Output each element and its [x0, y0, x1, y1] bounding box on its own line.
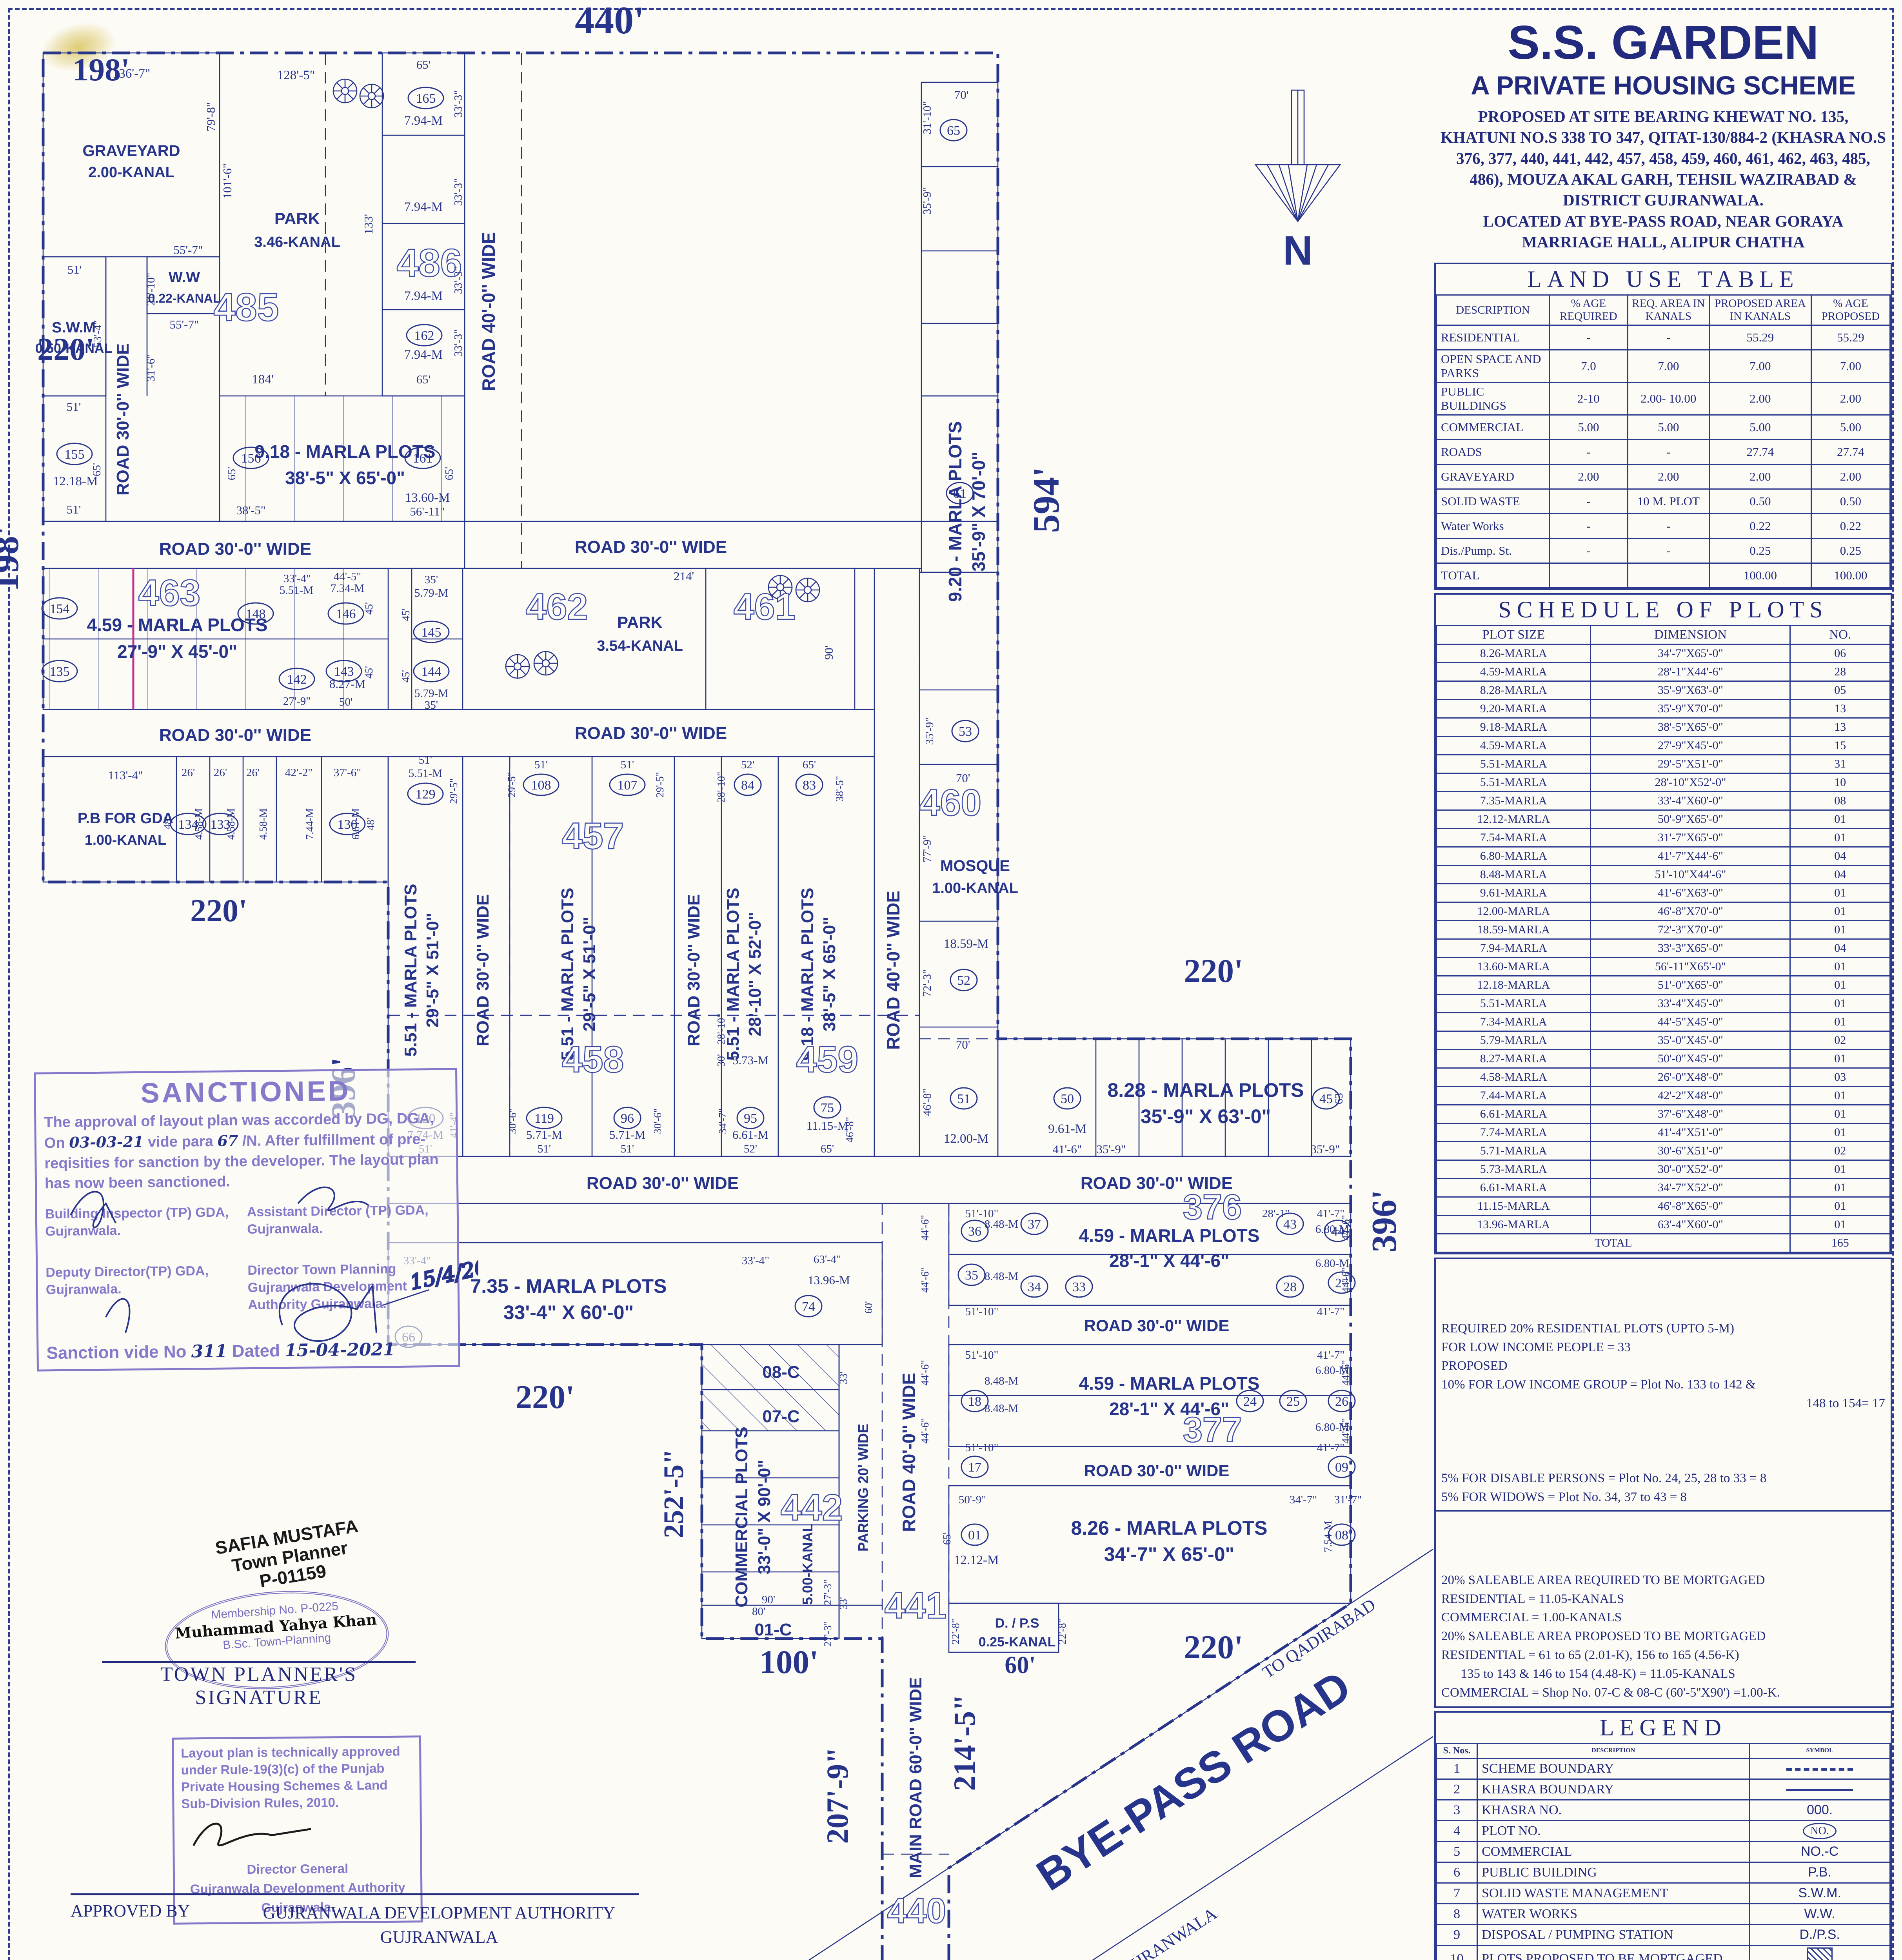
plot-number: 65 [947, 123, 960, 138]
note-line: 5% FOR WIDOWS = Plot No. 34, 37 to 43 = … [1441, 1488, 1885, 1507]
schedule-row: 6.61-MARLA 34'-7"X52'-0" 01 [1437, 1179, 1890, 1197]
legend-symbol: 000. [1807, 1802, 1833, 1817]
scheme-location: LOCATED AT BYE-PASS ROAD, NEAR GORAYA MA… [1440, 211, 1887, 253]
plan-label: 8.28 - MARLA PLOTS [1108, 1079, 1304, 1101]
plan-label: 41'-7" [1317, 1349, 1344, 1361]
plan-label: 4.59 - MARLA PLOTS [87, 615, 268, 635]
plan-label: 56'-11" [410, 505, 445, 518]
schedule-row: 4.59-MARLA 28'-1"X44'-6" 28 [1437, 663, 1890, 681]
plan-label: 459 [796, 1039, 859, 1080]
plan-label: 33' [837, 1372, 849, 1384]
schedule-row: 12.00-MARLA 46'-8"X70'-0" 01 [1437, 902, 1890, 921]
legend-symbol [1807, 1947, 1833, 1960]
stamp-signatures: 15/4/2021 [47, 1168, 478, 1443]
plan-label: 7.94-M [404, 289, 443, 303]
plot-number: 165 [416, 91, 436, 106]
legend-row: 9 DISPOSAL / PUMPING STATION D./P.S. [1437, 1924, 1890, 1945]
plan-label: 65' [443, 467, 456, 480]
plan-label: 55'-7" [173, 243, 203, 257]
plan-label: 51'-10" [965, 1305, 999, 1318]
plot-number: 52 [957, 973, 970, 988]
plan-label: 5.51-M [409, 767, 442, 780]
plan-label: ROAD 30'-0'' WIDE [575, 724, 727, 743]
plan-label: 35'-9" [923, 717, 936, 745]
handwritten-date: 15/4/2021 [408, 1250, 478, 1295]
dg-signature [182, 1811, 347, 1855]
plan-label: 136'-7" [113, 67, 150, 81]
layout-plan-title: LAYOUT PLAN [86, 1954, 608, 1960]
plot-number: 129 [416, 787, 436, 802]
plan-label: 3.54-KANAL [597, 638, 683, 654]
plan-label: 31'-10" [921, 101, 934, 134]
plan-label: 4.59 - MARLA PLOTS [1079, 1225, 1260, 1246]
plan-label: 30'-6" [507, 1108, 518, 1134]
plot-number: 161 [413, 451, 433, 466]
plan-label: 12.00-M [944, 1132, 989, 1146]
plan-label: 50'-9" [959, 1494, 986, 1506]
schedule-row: 12.18-MARLA 51'-0"X65'-0" 01 [1437, 976, 1890, 995]
plan-label: 35'-9" [921, 187, 934, 214]
plot-number: 162 [414, 328, 434, 343]
schedule-row: 7.94-MARLA 33'-3"X65'-0" 04 [1437, 939, 1890, 958]
plan-label: 08-C [762, 1363, 799, 1382]
plan-label: 65' [416, 58, 431, 71]
plan-label: 51' [621, 1143, 634, 1155]
plan-label: 33'-3" [452, 90, 465, 118]
plan-label: 26' [246, 766, 260, 779]
scheme-description: PROPOSED AT SITE BEARING KHEWAT NO. 135,… [1440, 106, 1887, 211]
plan-label: 220' [1184, 953, 1243, 989]
plot-number: 45 [1319, 1092, 1333, 1106]
land-use-header: % AGE PROPOSED [1811, 295, 1890, 325]
plot-number: 133 [211, 817, 231, 832]
plan-label: ROAD 30'-0'' WIDE [113, 343, 133, 495]
legend-row: 10 PLOTS PROPOSED TO BE MORTGAGED [1437, 1945, 1890, 1960]
plan-label: 4.58-M [257, 808, 269, 840]
plan-label: 27'-3" [822, 1579, 834, 1605]
plan-label: 7.94-M [404, 200, 443, 214]
plan-label: 31'-6" [145, 354, 157, 381]
plan-label: 460 [919, 782, 982, 824]
plan-label: 26' [182, 766, 195, 779]
plot-number: 24 [1243, 1394, 1257, 1409]
legend-row: 4 PLOT NO. NO. [1437, 1820, 1890, 1841]
plot-number: 75 [821, 1101, 834, 1115]
plan-label: 9.18 - MARLA PLOTS [798, 888, 817, 1061]
plan-label: 70' [956, 1038, 970, 1051]
schedule-row: 6.80-MARLA 41'-7"X44'-6" 04 [1437, 847, 1890, 866]
plan-label: 44'-6" [919, 1360, 931, 1385]
land-use-table: DESCRIPTION % AGE REQUIRED REQ. AREA IN … [1436, 294, 1891, 588]
plan-label: 1.00-KANAL [85, 832, 166, 848]
plot-number: 34 [1028, 1280, 1041, 1294]
plot-number: 134 [178, 817, 198, 832]
plan-label: ROAD 30'-0'' WIDE [1084, 1316, 1230, 1335]
plan-label: 28'-10" [715, 1014, 727, 1045]
land-use-header: DESCRIPTION [1437, 295, 1550, 325]
approving-authority: GUJRANWALA DEVELOPMENT AUTHORITY GUJRANW… [239, 1901, 639, 1949]
legend-row: 6 PUBLIC BUILDING P.B. [1437, 1862, 1890, 1883]
plan-label: 5.79-M [414, 687, 448, 700]
plan-label: 33'-3" [452, 267, 465, 294]
plot-number: 44 [1331, 1224, 1344, 1239]
plan-label: 198' [0, 526, 26, 592]
plan-label: ROAD 40'-0'' WIDE [899, 1373, 919, 1532]
note-line: 148 to 154= 17 [1441, 1394, 1885, 1413]
note-line: 20% SALEABLE AREA PROPOSED TO BE MORTGAG… [1441, 1627, 1885, 1646]
plan-label: 5.00-KANAL [799, 1523, 816, 1605]
plot-number: 61 [953, 486, 966, 501]
plan-label: 28'-10" X 52'-0" [745, 912, 765, 1036]
plan-label: ROAD 30'-0'' WIDE [575, 537, 727, 557]
plan-label: 458 [562, 1039, 624, 1080]
legend-header: SYMBOL [1749, 1743, 1890, 1758]
plan-label: ROAD 30'-0'' WIDE [587, 1174, 739, 1193]
town-planner-signature-label: TOWN PLANNER'S SIGNATURE [102, 1661, 416, 1709]
plan-label: S.W.M [52, 319, 96, 336]
plan-label: 65' [821, 1143, 834, 1155]
plan-label: 41'-7" [1317, 1441, 1344, 1454]
note-line: 5% FOR DISABLE PERSONS = Plot No. 24, 25… [1441, 1469, 1885, 1488]
plan-label: 35' [425, 699, 438, 711]
plan-label: ROAD 30'-0'' WIDE [1084, 1461, 1230, 1480]
plan-label: 80' [752, 1605, 765, 1618]
plan-label: 44'-6" [1340, 1418, 1352, 1443]
plan-label: GRAVEYARD [83, 142, 180, 160]
plot-number: 53 [959, 724, 972, 739]
plan-label: 0.25-KANAL [979, 1635, 1055, 1650]
plan-label: 38'-5" X 65'-0" [285, 468, 405, 488]
plan-label: W.W [169, 269, 200, 286]
schedule-row: 6.61-MARLA 37'-6"X48'-0" 01 [1437, 1105, 1890, 1123]
schedule-row: 5.71-MARLA 30'-6"X51'-0" 02 [1437, 1142, 1890, 1160]
plan-label: 214'-5" [947, 1694, 981, 1791]
plan-label: 44'-6" [919, 1418, 931, 1443]
plan-label: 5.51 - MARLA PLOTS [558, 888, 577, 1061]
plan-label: 46'-8" [844, 1117, 856, 1142]
plan-label: 7.94-M [404, 348, 443, 362]
plan-label: 22'-8" [950, 1619, 961, 1644]
plan-label: PARK [617, 613, 663, 632]
plan-label: 79'-8" [204, 102, 218, 131]
schedule-row: 9.20-MARLA 35'-9"X70'-0" 13 [1437, 700, 1890, 718]
note-line: FOR LOW INCOME PEOPLE = 33 [1441, 1338, 1885, 1357]
schedule-row: 7.35-MARLA 33'-4"X60'-0" 08 [1437, 792, 1890, 810]
plan-label: 27'-9" [283, 695, 311, 708]
plan-label: 52' [744, 1143, 757, 1155]
schedule-row: 5.73-MARLA 30'-0"X52'-0" 01 [1437, 1160, 1890, 1179]
plan-label: 35'-9" [1096, 1142, 1126, 1156]
approved-by-label: APPROVED BY [71, 1901, 239, 1949]
plan-label: 44'-6" [1340, 1360, 1352, 1385]
plan-label: 44'-6" [919, 1267, 931, 1292]
schedule-row: 5.51-MARLA 33'-4"X45'-0" 01 [1437, 995, 1890, 1013]
plan-label: 34'-7" [1290, 1494, 1317, 1506]
plot-number: 08 [1335, 1528, 1348, 1543]
plan-label: 65' [225, 467, 238, 480]
note-line: 135 to 143 & 146 to 154 (4.48-K) = 11.05… [1441, 1665, 1885, 1684]
plan-label: 29'-5" X 51'-0" [423, 913, 442, 1028]
plot-number: 74 [802, 1299, 815, 1314]
plan-label: 9.20 - MARLA PLOTS [945, 421, 965, 602]
schedule-row: 7.74-MARLA 41'-4"X51'-0" 01 [1437, 1123, 1890, 1142]
schedule-row: 9.18-MARLA 38'-5"X65'-0" 13 [1437, 718, 1890, 737]
legend-symbol: S.W.M. [1798, 1886, 1841, 1900]
plan-label: 5.71-M [526, 1128, 562, 1142]
plan-label: 65' [416, 372, 431, 386]
plan-label: 440' [575, 0, 645, 42]
plan-label: 13.60-M [405, 491, 450, 505]
schedule-title: SCHEDULE OF PLOTS [1436, 596, 1891, 623]
plan-label: 3.46-KANAL [254, 234, 340, 250]
plan-label: 55'-7" [169, 318, 199, 331]
plan-label: 63'-4" [814, 1253, 841, 1266]
plan-label: 220' [190, 893, 247, 928]
plan-label: 220' [515, 1379, 574, 1416]
layout-plan-sheet: N 440'198'220'198'220'396'594'220'396'22… [0, 0, 1902, 1960]
land-use-row: OPEN SPACE AND PARKS 7.0 7.00 7.00 7.00 [1437, 350, 1890, 383]
note-line: 20% SALEABLE AREA REQUIRED TO BE MORTGAG… [1441, 1571, 1885, 1590]
plan-label: 60' [1005, 1652, 1035, 1679]
plan-label: 53'-4" [91, 320, 104, 348]
plan-label: 7.35 - MARLA PLOTS [471, 1275, 667, 1297]
plan-label: 463 [138, 572, 201, 614]
plot-number: 37 [1028, 1217, 1041, 1232]
plot-number: 145 [421, 625, 441, 640]
land-use-row: GRAVEYARD 2.00 2.00 2.00 2.00 [1437, 465, 1890, 489]
plan-label: 29'-5" [506, 772, 518, 797]
plan-label: 184' [252, 372, 273, 387]
plan-label: 51' [534, 759, 548, 771]
plan-label: 13.96-M [808, 1273, 850, 1287]
plan-label: 8.48-M [985, 1270, 1018, 1283]
plan-label: 29'-5" [654, 772, 666, 797]
plan-label: 38'-5" [236, 503, 265, 517]
plot-number: 43 [1283, 1217, 1297, 1232]
plan-label: 45' [363, 602, 375, 615]
plan-label: 28'-1" X 44'-6" [1109, 1250, 1229, 1271]
plan-label: 37'-6" [334, 766, 361, 779]
schedule-row: 5.51-MARLA 29'-5"X51'-0" 31 [1437, 755, 1890, 773]
plan-label: 34'-7" X 65'-0" [1104, 1543, 1234, 1565]
plot-number: 28 [1283, 1280, 1297, 1294]
plan-label: 42'-2" [285, 766, 312, 779]
plan-label: 45' [400, 608, 412, 621]
legend-symbol: NO. [1803, 1823, 1836, 1839]
plan-label: 113'-4" [108, 768, 143, 782]
plan-label: 51' [419, 754, 432, 766]
plan-label: 461 [734, 586, 796, 628]
land-use-section: LAND USE TABLE DESCRIPTION % AGE REQUIRE… [1434, 263, 1892, 590]
plot-number: 148 [246, 607, 266, 621]
plan-label: TO QADIRABAD [1259, 1595, 1379, 1682]
land-use-header: PROPOSED AREA IN KANALS [1709, 295, 1811, 325]
main-title-block: LAYOUT PLAN LAYOUT PLAN SUPER IMPOSED ON… [86, 1954, 608, 1960]
legend-symbol [1786, 1768, 1853, 1771]
notes-section: REQUIRED 20% RESIDENTIAL PLOTS (UPTO 5-M… [1434, 1258, 1892, 1708]
plot-number: 01 [968, 1528, 981, 1543]
plan-label: 52' [741, 759, 754, 771]
plan-label: 12.12-M [954, 1553, 999, 1567]
plan-label: 5.79-M [414, 587, 448, 599]
plan-label: ROAD 40'-0'' WIDE [883, 891, 903, 1050]
plot-number: 155 [65, 447, 85, 462]
land-use-row: TOTAL 100.00 100.00 [1437, 563, 1890, 588]
plan-label: BYE-PASS ROAD [1028, 1661, 1359, 1900]
land-use-header: % AGE REQUIRED [1550, 295, 1628, 325]
plan-label: 9.61-M [1048, 1122, 1086, 1136]
plan-label: 22'-8" [1056, 1619, 1068, 1644]
plot-number: 143 [334, 664, 354, 679]
legend-symbol: W.W. [1804, 1906, 1835, 1921]
schedule-row: 13.96-MARLA 63'-4"X60'-0" 01 [1437, 1216, 1890, 1234]
schedule-row: 5.51-MARLA 28'-10"X52'-0" 10 [1437, 773, 1890, 792]
plot-number: 135 [50, 664, 70, 679]
sanctioned-title: SANCTIONED [44, 1074, 448, 1111]
land-use-row: Dis./Pump. St. - - 0.25 0.25 [1437, 539, 1890, 563]
plot-number: 50 [1061, 1092, 1074, 1106]
plan-label: 7.34-M [331, 582, 364, 595]
plan-label: PARK [274, 209, 320, 228]
plot-number: 130 [338, 817, 358, 832]
plan-label: D. / P.S [995, 1616, 1039, 1631]
note-line: COMMERCIAL = Shop No. 07-C & 08-C (60'-5… [1441, 1684, 1885, 1702]
plan-label: 48' [365, 818, 376, 830]
plot-number: 83 [803, 778, 816, 793]
plan-label: 46'-8" [921, 1089, 934, 1116]
title-panel: S.S. GARDEN A PRIVATE HOUSING SCHEME PRO… [1434, 10, 1892, 1960]
plan-label: 51' [538, 1143, 551, 1155]
plan-label: 18.59-M [944, 937, 989, 951]
legend-symbol: D./P.S. [1800, 1927, 1840, 1942]
plan-label: 34'-7" [717, 1108, 728, 1134]
plan-label: 38'-5" [834, 776, 845, 801]
plan-label: 5.71-M [609, 1128, 645, 1142]
sanction-para-handwritten: 67 [217, 1132, 238, 1150]
plan-label: 7.44-M [304, 808, 316, 840]
plan-label: 8.26 - MARLA PLOTS [1071, 1517, 1268, 1539]
schedule-row: 8.48-MARLA 51'-10"X44'-6" 04 [1437, 866, 1890, 884]
schedule-row: 9.61-MARLA 41'-6"X63'-0" 01 [1437, 884, 1890, 902]
plan-label: 128'-5" [277, 68, 315, 82]
plan-label: PARKING 20' WIDE [855, 1424, 871, 1552]
bye-pass-road-upper-edge [708, 1549, 1433, 1960]
plot-number: 119 [534, 1111, 554, 1126]
plan-label: 60' [863, 1301, 874, 1314]
plan-label: 485 [214, 285, 279, 329]
schedule-row: 7.34-MARLA 44'-5"X45'-0" 01 [1437, 1013, 1890, 1031]
plot-number: 96 [621, 1111, 634, 1126]
plot-number: 95 [744, 1111, 757, 1126]
plan-label: 44'-5" [334, 570, 361, 583]
plan-label: 440 [887, 1891, 946, 1931]
plan-label: 33'-4" [742, 1254, 769, 1267]
plan-label: 31'-7" [1334, 1494, 1362, 1506]
plan-label: 29'-5" X 51'-0" [580, 917, 599, 1032]
legend-header: DESCRIPTION [1477, 1743, 1749, 1758]
schedule-row: 7.54-MARLA 31'-7"X65'-0" 01 [1437, 829, 1890, 847]
land-use-row: SOLID WASTE - 10 M. PLOT 0.50 0.50 [1437, 489, 1890, 514]
plan-label: 35' [425, 573, 438, 586]
plot-number: 108 [531, 778, 551, 793]
plan-label: ROAD 30'-0'' WIDE [159, 726, 311, 745]
plan-label: 35'-9" [1310, 1142, 1340, 1156]
schedule-row: 8.26-MARLA 34'-7"X65'-0" 06 [1437, 644, 1890, 663]
plot-number: 154 [50, 602, 70, 616]
plot-number: 156 [241, 451, 261, 466]
plan-label: 442 [781, 1487, 843, 1528]
plan-label: MOSQUE [940, 857, 1010, 875]
plot-number: 09 [1335, 1460, 1348, 1475]
plan-label: 33'-3" [452, 329, 465, 357]
plan-label: 26' [214, 766, 227, 779]
legend-table: S. Nos. DESCRIPTION SYMBOL 1 SCHEME BOUN… [1436, 1743, 1891, 1960]
plan-label: 377 [1183, 1410, 1242, 1450]
plan-label: 207'-9" [820, 1747, 854, 1844]
legend-title: LEGEND [1436, 1714, 1891, 1741]
schedule-total-row: TOTAL 165 [1437, 1234, 1890, 1252]
plan-label: 27'-3" [822, 1621, 834, 1646]
plan-label: ROAD 30'-0'' WIDE [684, 894, 703, 1046]
plan-label: ROAD 30'-0'' WIDE [473, 894, 492, 1046]
land-use-header: REQ. AREA IN KANALS [1628, 295, 1709, 325]
plot-number: 35 [965, 1268, 978, 1283]
north-label: N [1283, 228, 1313, 274]
plan-label: 35'-9" X 70'-0" [968, 452, 989, 572]
plan-label: 51' [621, 759, 634, 771]
land-use-row: Water Works - - 0.22 0.22 [1437, 514, 1890, 539]
plot-number: 84 [741, 778, 754, 793]
plot-number: 33 [1072, 1280, 1086, 1294]
plan-label: 7.94-M [404, 114, 443, 128]
schedule-row: 8.28-MARLA 35'-9"X63'-0" 05 [1437, 681, 1890, 700]
plan-label: 8.48-M [985, 1218, 1018, 1230]
plan-label: ROAD 40'-0'' WIDE [478, 232, 499, 391]
plan-label: 29'-5" [448, 778, 460, 804]
plot-number: 146 [336, 607, 356, 621]
plan-label: 8.48-M [985, 1402, 1018, 1415]
legend-section: LEGEND S. Nos. DESCRIPTION SYMBOL 1 SCHE… [1434, 1711, 1892, 1960]
plan-label: 220' [1184, 1629, 1243, 1666]
plot-number: 27 [1335, 1276, 1348, 1290]
plan-label: 30' [715, 1054, 727, 1067]
plot-number: 26 [1335, 1394, 1348, 1409]
plot-number: 25 [1286, 1394, 1300, 1409]
note-line: PROPOSED [1441, 1357, 1885, 1376]
plan-label: 90' [822, 646, 836, 660]
plan-label: 214' [674, 569, 694, 583]
plan-label: 51' [67, 263, 82, 276]
legend-symbol [1786, 1789, 1853, 1791]
plan-label: 51'-10" [965, 1349, 999, 1361]
plan-label: 252'-5" [658, 1449, 689, 1538]
approved-by-block: APPROVED BY GUJRANWALA DEVELOPMENT AUTHO… [71, 1893, 639, 1949]
schedule-row: 4.58-MARLA 26'-0"X48'-0" 03 [1437, 1068, 1890, 1087]
plan-label: 65' [803, 759, 816, 771]
plot-number: 144 [421, 664, 441, 679]
plot-number: 36 [968, 1224, 981, 1239]
legend-row: 3 KHASRA NO. 000. [1437, 1800, 1890, 1820]
legend-header: S. Nos. [1437, 1743, 1477, 1758]
schedule-header: PLOT SIZE [1437, 626, 1591, 644]
plan-label: 462 [526, 586, 588, 628]
plan-label: 72'-3" [921, 969, 934, 997]
plan-label: COMMERCIAL PLOTS [732, 1426, 751, 1607]
plan-label: 65' [91, 463, 103, 476]
schedule-header: DIMENSION [1591, 626, 1790, 644]
schedule-header: NO. [1790, 626, 1890, 644]
schedule-section: SCHEDULE OF PLOTS PLOT SIZE DIMENSION NO… [1434, 593, 1892, 1254]
